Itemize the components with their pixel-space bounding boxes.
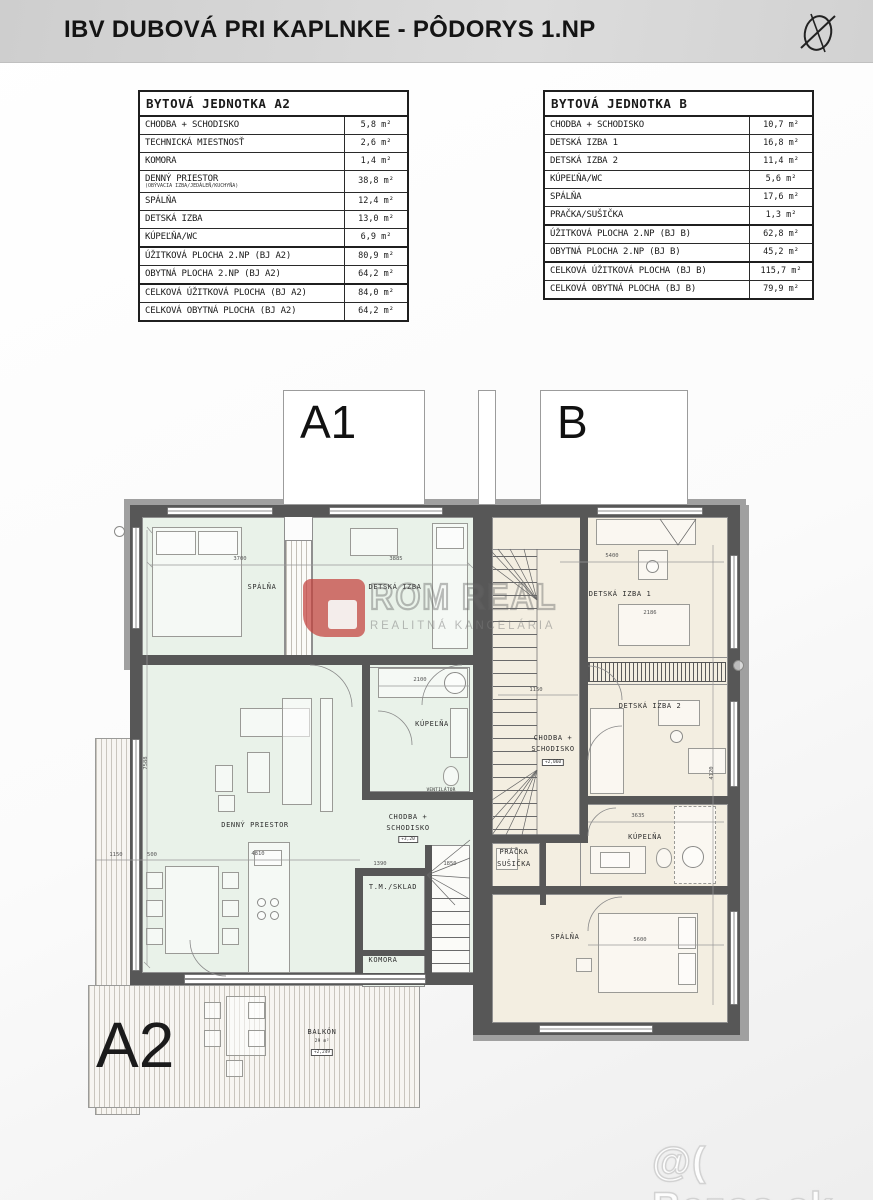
area-value: 38,8 m² — [344, 171, 407, 192]
tv-unit — [282, 698, 312, 805]
pillow — [678, 953, 696, 985]
wall — [142, 655, 475, 665]
chair — [226, 1060, 243, 1077]
exterior-marker — [733, 660, 744, 671]
room-label: ÚŽITKOVÁ PLOCHA 2.NP (BJ A2) — [140, 248, 344, 265]
unit-a1-text: A1 — [300, 396, 356, 448]
wall — [362, 660, 370, 800]
label-detska-b1: DETSKÁ IZBA 1 — [589, 590, 652, 599]
window — [540, 1026, 652, 1032]
page-title: IBV DUBOVÁ PRI KAPLNKE - PÔDORYS 1.NP — [64, 16, 596, 44]
wall — [473, 1035, 749, 1041]
cabinet — [320, 698, 333, 812]
toilet-b — [656, 848, 672, 868]
dimension-label: 1850 — [443, 861, 456, 867]
stove-burner — [257, 911, 266, 920]
dimension-label: 1150 — [529, 687, 542, 693]
room-label: ÚŽITKOVÁ PLOCHA 2.NP (BJ B) — [545, 226, 749, 243]
room-label: TECHNICKÁ MIESTNOSŤ — [140, 135, 344, 152]
wall — [355, 868, 430, 876]
washing-machine — [444, 672, 466, 694]
room-label: SPÁLŇA — [545, 189, 749, 206]
promreal-logo-icon — [303, 579, 365, 637]
area-value: 12,4 m² — [344, 193, 407, 210]
dimension-label: 2186 — [643, 610, 656, 616]
room-label: CHODBA + SCHODISKO — [545, 117, 749, 134]
window — [168, 508, 272, 514]
pillow — [678, 917, 696, 949]
table-body: CHODBA + SCHODISKO5,8 m²TECHNICKÁ MIESTN… — [140, 117, 407, 320]
nightstand — [576, 958, 592, 972]
window — [731, 556, 737, 648]
room-label: KOMORA — [140, 153, 344, 170]
label-spalna-a: SPÁLŇA — [248, 583, 277, 592]
unit-b-text: B — [557, 396, 588, 448]
sink-b — [600, 852, 630, 868]
agency-subtitle: REALITNÁ KANCELÁRIA — [370, 618, 568, 632]
table-row: SPÁLŇA17,6 m² — [545, 188, 812, 206]
label-pracka-1: PRÁČKA — [500, 848, 529, 857]
north-compass-icon — [795, 8, 841, 58]
area-value: 6,9 m² — [344, 229, 407, 246]
label-detska-b2: DETSKÁ IZBA 2 — [619, 702, 682, 711]
window — [133, 740, 139, 970]
dimension-label: 3635 — [631, 813, 644, 819]
table-row: ÚŽITKOVÁ PLOCHA 2.NP (BJ A2)80,9 m² — [140, 246, 407, 265]
bed-detska-b2 — [590, 708, 624, 794]
room-label: DETSKÁ IZBA — [140, 211, 344, 228]
table-unit-b: BYTOVÁ JEDNOTKA B CHODBA + SCHODISKO10,7… — [543, 90, 814, 300]
label-kupelna-a: KÚPEĽŇA — [415, 720, 449, 729]
chair — [222, 872, 239, 889]
dimension-label: 7588 — [143, 756, 149, 769]
wall — [362, 792, 475, 800]
table-row: DETSKÁ IZBA 116,8 m² — [545, 134, 812, 152]
table-row: OBYTNÁ PLOCHA 2.NP (BJ B)45,2 m² — [545, 243, 812, 261]
title-bar: IBV DUBOVÁ PRI KAPLNKE - PÔDORYS 1.NP — [0, 0, 873, 63]
table-row: CELKOVÁ OBYTNÁ PLOCHA (BJ B)79,9 m² — [545, 280, 812, 298]
table-body: CHODBA + SCHODISKO10,7 m²DETSKÁ IZBA 116… — [545, 117, 812, 298]
chair — [146, 900, 163, 917]
room-label: DENNÝ PRIESTOR(OBÝVACIA IZBA/JEDÁLEŇ/KUC… — [140, 171, 344, 192]
stove-burner — [270, 911, 279, 920]
room-label: OBYTNÁ PLOCHA 2.NP (BJ B) — [545, 244, 749, 261]
wall — [580, 796, 728, 804]
table-row: CELKOVÁ ÚŽITKOVÁ PLOCHA (BJ A2)84,0 m² — [140, 283, 407, 302]
area-value: 2,6 m² — [344, 135, 407, 152]
dining-table — [165, 866, 219, 954]
level-badge-a: +3,20 — [398, 836, 418, 843]
coffee-table — [215, 765, 233, 792]
label-pracka-2: SUŠIČKA — [497, 860, 531, 869]
room-label: CELKOVÁ OBYTNÁ PLOCHA (BJ A2) — [140, 303, 344, 320]
area-value: 13,0 m² — [344, 211, 407, 228]
area-value: 1,4 m² — [344, 153, 407, 170]
exterior-marker — [114, 526, 125, 537]
table-row: PRAČKA/SUŠIČKA1,3 m² — [545, 206, 812, 224]
room-label: DETSKÁ IZBA 1 — [545, 135, 749, 152]
room-label: DETSKÁ IZBA 2 — [545, 153, 749, 170]
decor — [811, 14, 825, 52]
table-row: CHODBA + SCHODISKO5,8 m² — [140, 117, 407, 134]
pillow — [198, 531, 238, 555]
shower-drain — [682, 846, 704, 868]
chair — [204, 1030, 221, 1047]
table-row: OBYTNÁ PLOCHA 2.NP (BJ A2)64,2 m² — [140, 265, 407, 283]
wardrobe-b1 — [596, 519, 696, 545]
side-table — [218, 795, 235, 812]
room-sublabel: (OBÝVACIA IZBA/JEDÁLEŇ/KUCHYŇA) — [145, 184, 339, 190]
table-unit-a2: BYTOVÁ JEDNOTKA A2 CHODBA + SCHODISKO5,8… — [138, 90, 409, 322]
label-tm-sklad: T.M./SKLAD — [369, 883, 417, 892]
dimension-label: 500 — [147, 852, 157, 858]
toilet-a — [443, 766, 459, 786]
dimension-label: 4120 — [709, 766, 715, 779]
area-value: 64,2 m² — [344, 303, 407, 320]
table-row: DETSKÁ IZBA 211,4 m² — [545, 152, 812, 170]
area-value: 64,2 m² — [344, 266, 407, 283]
table-row: DETSKÁ IZBA13,0 m² — [140, 210, 407, 228]
sofa — [247, 752, 270, 793]
level-badge-balkon: +2,249 — [311, 1049, 333, 1056]
room-label: OBYTNÁ PLOCHA 2.NP (BJ A2) — [140, 266, 344, 283]
area-value: 80,9 m² — [344, 248, 407, 265]
table-row: CHODBA + SCHODISKO10,7 m² — [545, 117, 812, 134]
window — [330, 508, 442, 514]
area-value: 79,9 m² — [749, 281, 812, 298]
table-row: SPÁLŇA12,4 m² — [140, 192, 407, 210]
pillow — [156, 531, 196, 555]
window — [185, 975, 425, 983]
chair — [204, 1002, 221, 1019]
dimension-label: 5600 — [633, 937, 646, 943]
party-wall-strip — [478, 390, 496, 505]
unit-label-a1: A1 — [283, 390, 425, 505]
area-value: 62,8 m² — [749, 226, 812, 243]
dimension-label: 4810 — [251, 851, 264, 857]
site-watermark: @( Bazos.sk — [652, 1140, 873, 1200]
room-label: CELKOVÁ OBYTNÁ PLOCHA (BJ B) — [545, 281, 749, 298]
pillow — [436, 527, 464, 549]
room-label: KÚPEĽŇA/WC — [140, 229, 344, 246]
table-row: DENNÝ PRIESTOR(OBÝVACIA IZBA/JEDÁLEŇ/KUC… — [140, 170, 407, 192]
room-label: CELKOVÁ ÚŽITKOVÁ PLOCHA (BJ A2) — [140, 285, 344, 302]
table-row: KOMORA1,4 m² — [140, 152, 407, 170]
window — [133, 528, 139, 628]
stove-burner — [257, 898, 266, 907]
label-chodba-a-2: SCHODISKO — [386, 824, 429, 833]
chair — [146, 928, 163, 945]
table-row: KÚPEĽŇA/WC6,9 m² — [140, 228, 407, 246]
agency-watermark-text-block: ROM REAL REALITNÁ KANCELÁRIA — [370, 579, 578, 632]
room-label: CHODBA + SCHODISKO — [140, 117, 344, 134]
shower-b — [674, 806, 716, 884]
wardrobe-b2 — [688, 748, 726, 774]
label-chodba-a-1: CHODBA + — [389, 813, 428, 822]
agency-name: ROM REAL — [370, 579, 557, 615]
wall — [492, 886, 728, 894]
unit-label-a2: A2 — [96, 1008, 174, 1082]
area-value: 84,0 m² — [344, 285, 407, 302]
dimension-label: 2100 — [413, 677, 426, 683]
area-value: 45,2 m² — [749, 244, 812, 261]
dimension-label: 1150 — [109, 852, 122, 858]
room-label: SPÁLŇA — [140, 193, 344, 210]
chair — [646, 560, 659, 573]
stairs-a — [430, 898, 470, 978]
area-value: 1,3 m² — [749, 207, 812, 224]
label-balkon: BALKÓN — [308, 1028, 337, 1037]
bathtub-a — [450, 708, 468, 758]
radiator — [588, 662, 726, 682]
table-row: CELKOVÁ ÚŽITKOVÁ PLOCHA (BJ B)115,7 m² — [545, 261, 812, 280]
table-title: BYTOVÁ JEDNOTKA A2 — [140, 92, 407, 117]
window — [598, 508, 702, 514]
table-row: TECHNICKÁ MIESTNOSŤ2,6 m² — [140, 134, 407, 152]
label-chodba-b-1: CHODBA + — [534, 734, 573, 743]
dimension-label: 5400 — [605, 553, 618, 559]
label-kupelna-b: KÚPEĽŇA — [628, 833, 662, 842]
level-badge-b: +2,060 — [542, 759, 564, 766]
area-value: 17,6 m² — [749, 189, 812, 206]
chair — [146, 872, 163, 889]
wall — [355, 868, 363, 973]
chair — [248, 1002, 265, 1019]
dimension-label: 3885 — [389, 556, 402, 562]
chair — [222, 900, 239, 917]
area-value: 10,7 m² — [749, 117, 812, 134]
wall — [425, 845, 432, 973]
area-value: 11,4 m² — [749, 153, 812, 170]
label-spalna-b: SPÁLŇA — [551, 933, 580, 942]
table-row: CELKOVÁ OBYTNÁ PLOCHA (BJ A2)64,2 m² — [140, 302, 407, 320]
chair — [670, 730, 683, 743]
agency-watermark: ROM REAL REALITNÁ KANCELÁRIA — [303, 579, 578, 637]
room-label: CELKOVÁ ÚŽITKOVÁ PLOCHA (BJ B) — [545, 263, 749, 280]
area-value: 5,8 m² — [344, 117, 407, 134]
room-label: PRAČKA/SUŠIČKA — [545, 207, 749, 224]
window — [731, 912, 737, 1004]
floorplan-page: IBV DUBOVÁ PRI KAPLNKE - PÔDORYS 1.NP BY… — [0, 0, 873, 1200]
stove-burner — [270, 898, 279, 907]
wall — [540, 843, 546, 905]
dimension-label: 1390 — [373, 861, 386, 867]
chair — [248, 1030, 265, 1047]
wall — [580, 517, 588, 843]
table-title: BYTOVÁ JEDNOTKA B — [545, 92, 812, 117]
area-value: 115,7 m² — [749, 263, 812, 280]
wall — [492, 835, 588, 843]
wall — [740, 505, 749, 1038]
chair — [222, 928, 239, 945]
dimension-label: 3700 — [233, 556, 246, 562]
label-balkon-area: 29 m² — [315, 1039, 330, 1045]
area-value: 5,6 m² — [749, 171, 812, 188]
table-row: KÚPEĽŇA/WC5,6 m² — [545, 170, 812, 188]
label-denny-priestor: DENNÝ PRIESTOR — [221, 821, 288, 830]
area-value: 16,8 m² — [749, 135, 812, 152]
unit-label-b: B — [540, 390, 688, 505]
table-row: ÚŽITKOVÁ PLOCHA 2.NP (BJ B)62,8 m² — [545, 224, 812, 243]
label-komora: KOMORA — [369, 956, 398, 965]
label-chodba-b-2: SCHODISKO — [531, 745, 574, 754]
room-label: KÚPEĽŇA/WC — [545, 171, 749, 188]
label-ventilator: VENTILÁTOR — [426, 788, 455, 794]
window — [731, 702, 737, 786]
desk-detska-a — [350, 528, 398, 556]
